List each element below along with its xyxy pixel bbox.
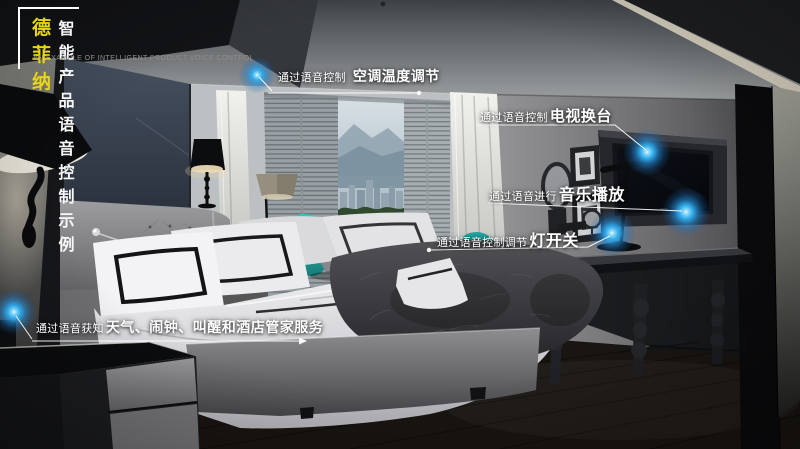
callout-light-switch: 通过语音控制调节 灯开关 [437,227,579,251]
callout-prefix: 通过语音控制 [278,69,346,85]
slide: 德菲纳 智能产品语音控制示例 AN EXAMPLE OF INTELLIGENT… [0,0,800,449]
callout-label: 天气、闹钟、叫醒和酒店管家服务 [106,317,324,337]
callout-air-conditioning: 通过语音控制 空调温度调节 [278,66,440,86]
callout-prefix: 通过语音获知 [36,320,104,336]
callout-prefix: 通过语音控制调节 [437,234,527,250]
callout-label: 灯开关 [529,227,579,251]
callout-prefix: 通过语音控制 [480,109,548,125]
brand-name: 德菲纳 [32,13,52,94]
hotspot-dot-light-switch [589,210,635,256]
callout-butler-service: 通过语音获知 天气、闹钟、叫醒和酒店管家服务 [36,317,323,337]
page-subtitle: AN EXAMPLE OF INTELLIGENT PRODUCT VOICE … [33,55,254,62]
callout-music-playback: 通过语音进行 音乐播放 [489,181,625,205]
callout-label: 电视换台 [550,105,612,126]
callout-label: 空调温度调节 [353,66,440,86]
title-row: 德菲纳 智能产品语音控制示例 [32,13,74,255]
callout-prefix: 通过语音进行 [489,188,557,204]
hotspot-dot-music [662,188,710,236]
hotspot-dot-tv [624,129,670,175]
callout-label: 音乐播放 [559,181,625,205]
callout-tv-channel: 通过语音控制 电视换台 [480,105,612,126]
hotspot-dot-air-conditioning [239,57,275,93]
page-title: 智能产品语音控制示例 [59,15,75,255]
